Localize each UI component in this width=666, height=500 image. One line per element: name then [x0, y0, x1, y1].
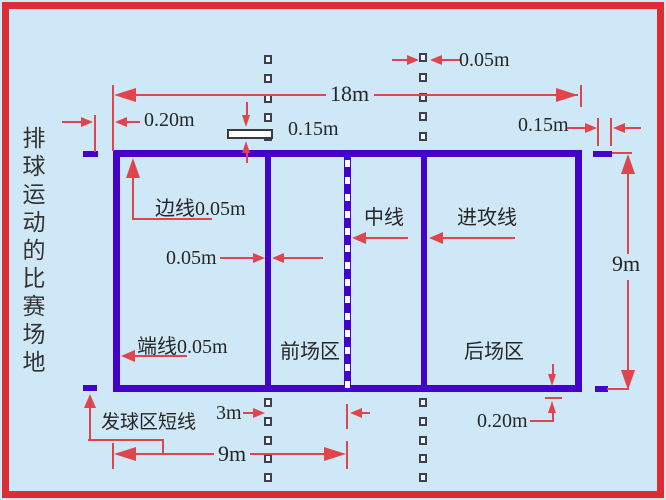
dim-18m-label: 18m [330, 83, 369, 105]
extension-dash-dot [264, 113, 272, 122]
volleyball-court-diagram: 排球运动的比赛场地 18m 0.05m 0.20m 0.15m 0.15m [0, 0, 666, 500]
dim-015-right-arrow-b [613, 123, 625, 133]
attack-line-arrow-line [443, 237, 515, 239]
dash-sample-rect [227, 129, 273, 139]
dim-020-left-line-a [62, 121, 82, 123]
extension-dash-dot [419, 398, 427, 407]
court-endline-left [113, 150, 120, 392]
attack-line-arrow [429, 232, 443, 244]
dim-18m-line-a [134, 94, 326, 96]
dim-015-right-tick-b [610, 118, 612, 146]
dim-9m-bottom-label: 9m [218, 443, 246, 465]
dim-015-mid-arrow-down [242, 115, 250, 127]
extension-dash-dot [419, 473, 427, 482]
sideline-leader-vline [132, 176, 134, 220]
dim-005-top-label: 0.05m [459, 50, 510, 70]
center-line-dashed [344, 150, 351, 392]
attack-line-left [265, 150, 271, 392]
service-line-leader-vline [89, 406, 91, 440]
dim-015-right-line-a [567, 127, 587, 129]
extension-dash-dot [419, 417, 427, 426]
sideline-leader-arrow [126, 158, 140, 178]
dim-020-left-arrow-a [81, 117, 93, 127]
dim-005-inner-label: 0.05m [166, 248, 217, 268]
dim-020-bottom-tick [545, 397, 562, 399]
dim-015-right-arrow-a [585, 123, 597, 133]
service-line-leader-underline [88, 439, 164, 441]
service-line-leader-tick [162, 441, 164, 453]
court-endline-right [575, 150, 582, 392]
center-line-label: 中线 [364, 208, 404, 228]
service-short-line-label: 发球区短线 [101, 413, 196, 432]
dim-005-top-arrow-a [407, 55, 419, 65]
dim-020-bottom-elbow [530, 420, 554, 422]
dim-015-right-tick-a [597, 118, 599, 146]
dim-005-top-line-b [442, 59, 460, 61]
dim-3m-label: 3m [216, 403, 242, 423]
attack-line-extension-bottom-left [264, 398, 272, 482]
extension-dash-dot [264, 398, 272, 407]
connector-bottom-right [607, 388, 629, 390]
front-zone-label: 前场区 [280, 342, 340, 362]
endline-label: 端线0.05m [137, 337, 228, 357]
dim-3m-arrow-a [253, 408, 265, 418]
attack-line-label: 进攻线 [457, 208, 517, 228]
dim-020-left-line-b [127, 121, 140, 123]
dim-020-left-arrow-b [115, 117, 127, 127]
dim-9m-vert-line-b [627, 280, 629, 372]
dim-9m-bottom-arrow-left [114, 447, 136, 461]
dim-18m-arrow-right [556, 88, 578, 102]
extension-dash-dot [264, 55, 272, 64]
extension-dash-dot [264, 417, 272, 426]
dim-9m-vert-arrow-up [621, 154, 635, 174]
attack-line-right [421, 150, 427, 392]
dim-015-mid-label: 0.15m [288, 119, 339, 139]
dim-005-inner-line-a [220, 257, 255, 259]
dim-9m-bottom-line-b [250, 453, 324, 455]
dim-9m-bottom-line-a [134, 453, 214, 455]
extension-dash-dot [264, 436, 272, 445]
dim-015-mid-line-down [246, 102, 248, 116]
extension-dash-dot [419, 132, 427, 141]
dim-9m-bottom-arrow-right [324, 447, 346, 461]
endline-arrow-line [135, 355, 187, 357]
diagram-title-vertical: 排球运动的比赛场地 [18, 126, 48, 396]
dim-3m-line-b [362, 412, 370, 414]
center-line-arrow-line [366, 237, 408, 239]
dim-005-inner-line-b [284, 257, 323, 259]
center-line-arrow [352, 232, 366, 244]
dim-005-top-arrow-b [430, 55, 442, 65]
dim-005-inner-arrow-b [272, 253, 284, 263]
dim-005-inner-arrow-a [253, 253, 265, 263]
dim-020-bottom-arrow-down [548, 374, 556, 386]
service-mark-top-right [593, 151, 612, 157]
attack-line-extension-top-right [419, 53, 427, 141]
dim-9m-vert-line-a [627, 172, 629, 254]
dim-9m-bottom-tick-right [346, 441, 348, 469]
dim-18m-line-b [374, 94, 578, 96]
extension-dash-dot [419, 112, 427, 121]
extension-dash-dot [264, 454, 272, 463]
dim-020-left-label: 0.20m [144, 110, 195, 130]
dim-9m-vert-arrow-down [621, 370, 635, 390]
extension-dash-dot [264, 473, 272, 482]
dim-015-right-line-b [625, 127, 641, 129]
dim-18m-arrow-left [114, 88, 136, 102]
dim-3m-arrow-b [350, 408, 362, 418]
back-zone-label: 后场区 [464, 342, 524, 362]
dim-020-left-tick [94, 115, 96, 152]
dim-015-mid-line-up [246, 151, 248, 163]
dim-020-bottom-label: 0.20m [477, 411, 528, 431]
extension-dash-dot [419, 436, 427, 445]
dim-015-right-label: 0.15m [518, 115, 569, 135]
dim-3m-tick [346, 404, 348, 429]
extension-dash-dot [419, 454, 427, 463]
extension-dash-dot [264, 74, 272, 83]
service-mark-bottom-left [83, 385, 97, 391]
extension-dash-dot [419, 53, 427, 62]
endline-arrow [121, 350, 135, 362]
attack-line-extension-bottom-right [419, 398, 427, 482]
dim-18m-tick-right [580, 85, 582, 107]
dim-9m-vert-label: 9m [612, 253, 640, 275]
sideline-label: 边线0.05m [155, 199, 246, 219]
extension-dash-dot [419, 73, 427, 82]
